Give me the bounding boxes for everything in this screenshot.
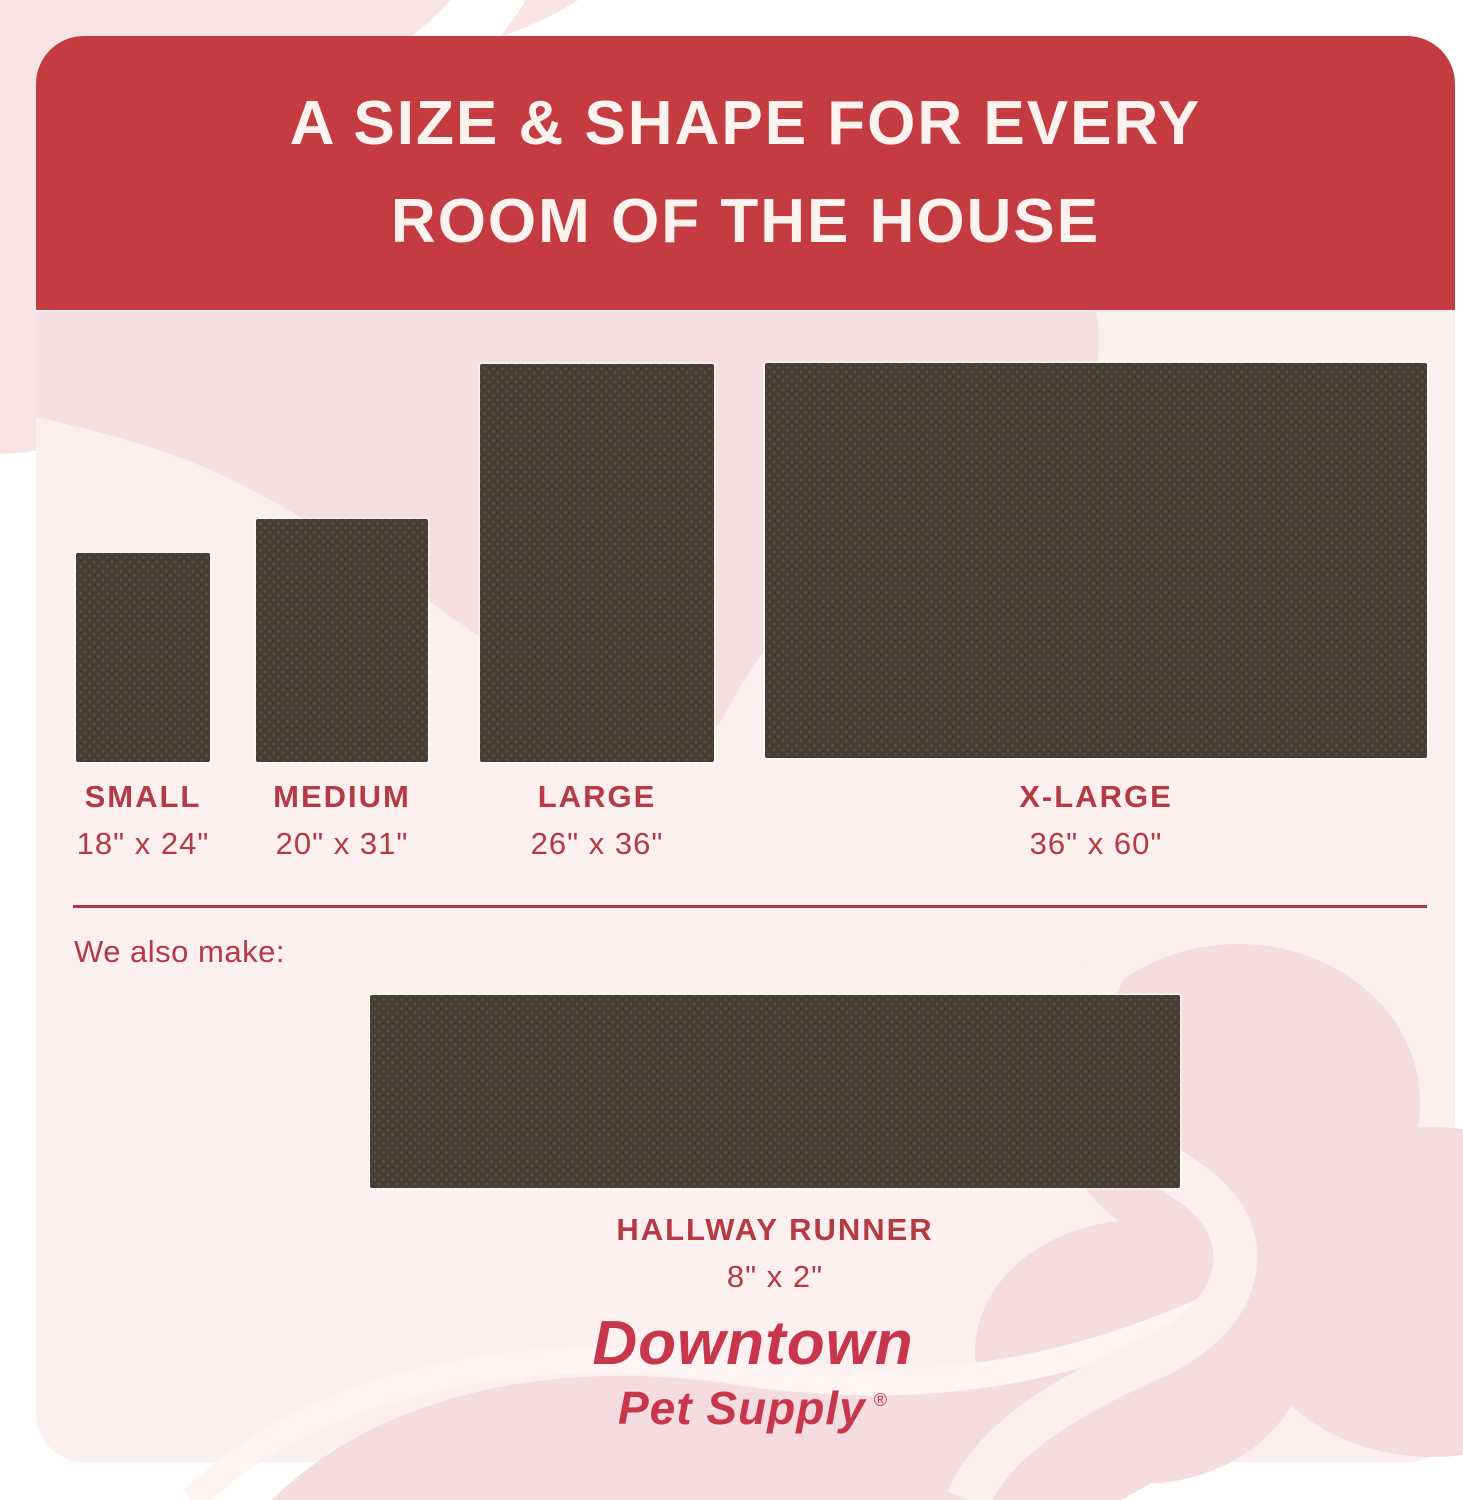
rug-swatch-small xyxy=(76,553,210,762)
size-guide-infographic: A SIZE & SHAPE FOR EVERY ROOM OF THE HOU… xyxy=(0,0,1463,1500)
size-label-large: LARGE 26" x 36" xyxy=(427,779,767,862)
page-title-line1: A SIZE & SHAPE FOR EVERY xyxy=(290,75,1202,173)
divider-line xyxy=(73,905,1427,908)
size-dimensions: 36" x 60" xyxy=(926,826,1266,862)
size-dimensions: 8" x 2" xyxy=(605,1259,945,1295)
rug-swatch-xlarge xyxy=(765,363,1427,758)
brand-tagline-text: Pet Supply xyxy=(618,1382,866,1434)
page-title-line2: ROOM OF THE HOUSE xyxy=(391,173,1100,271)
brand-name: Downtown xyxy=(592,1308,913,1379)
rug-swatch-hallway-runner xyxy=(370,995,1180,1188)
size-name: HALLWAY RUNNER xyxy=(605,1212,945,1248)
size-name: X-LARGE xyxy=(926,779,1266,815)
rug-swatch-large xyxy=(480,364,714,762)
size-label-hallway-runner: HALLWAY RUNNER 8" x 2" xyxy=(605,1212,945,1295)
size-name: LARGE xyxy=(427,779,767,815)
also-make-text: We also make: xyxy=(74,934,285,970)
header-banner: A SIZE & SHAPE FOR EVERY ROOM OF THE HOU… xyxy=(36,36,1455,310)
size-label-xlarge: X-LARGE 36" x 60" xyxy=(926,779,1266,862)
brand-tagline: Pet Supply® xyxy=(592,1381,913,1435)
size-dimensions: 26" x 36" xyxy=(427,826,767,862)
rug-swatch-medium xyxy=(256,519,428,762)
brand-logo: Downtown Pet Supply® xyxy=(592,1308,913,1435)
registered-trademark-icon: ® xyxy=(874,1390,888,1410)
